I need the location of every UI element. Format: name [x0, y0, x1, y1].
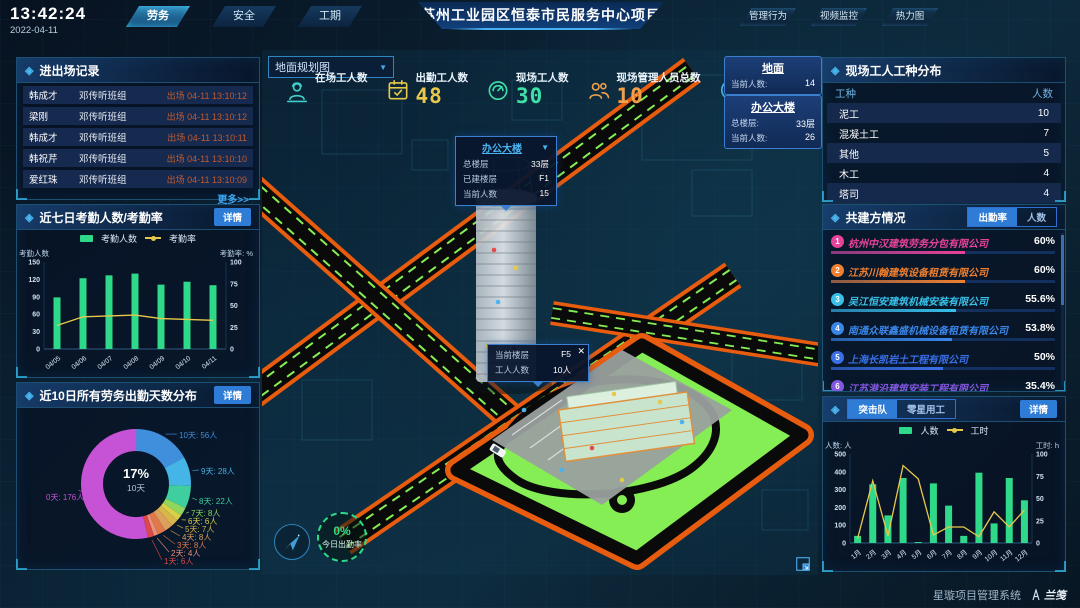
people-icon	[586, 77, 612, 103]
building-info-card: 办公大楼 总楼层:33层 当前人数:26	[724, 95, 822, 149]
building-tooltip: 办公大楼 ▼ 总楼层33层 已建楼层F1 当前人数15	[455, 136, 557, 206]
rank-badge: 4	[831, 322, 844, 335]
assault-legend: 人数 工时	[823, 422, 1065, 438]
svg-text:工时: h: 工时: h	[1036, 440, 1059, 450]
ground-info-card: 地面 当前人数:14	[724, 56, 822, 95]
svg-text:120: 120	[28, 277, 40, 284]
partner-percentage: 60%	[1034, 235, 1055, 247]
legend-label: 考勤人数	[101, 232, 137, 245]
svg-text:12月: 12月	[1013, 548, 1029, 563]
partner-row: 4南通众联鑫盛机械设备租赁有限公司53.8%	[831, 322, 1055, 346]
svg-text:100: 100	[230, 260, 242, 267]
panel-diamond-icon: ◈	[831, 403, 839, 416]
system-name: 星璇项目管理系统	[933, 587, 1021, 603]
attendance-chart: 考勤人数考勤率: %0306090120150025507510004/0504…	[17, 246, 255, 376]
stat-value: 48	[416, 85, 469, 108]
legend-line-swatch	[145, 237, 161, 239]
legend-label: 人数	[920, 424, 938, 437]
progress-fill	[831, 367, 943, 370]
worker-type: 塔司	[839, 186, 859, 201]
stat-item: 现场工人数30	[485, 70, 569, 108]
partner-name: 上海长凯岩土工程有限公司	[848, 351, 1013, 366]
nav-tab-safety[interactable]: 安全	[212, 6, 276, 27]
tooltip-title: 办公大楼	[482, 140, 522, 155]
chevron-down-icon[interactable]: ▼	[541, 143, 549, 152]
nav-left: 劳务 安全 工期	[126, 6, 362, 27]
assault-chart: 人数: 人工时: h010020030040050002550751001月2月…	[823, 438, 1061, 570]
current-time: 13:42:24	[10, 4, 86, 24]
panel-diamond-icon: ◈	[831, 64, 839, 77]
floor-tooltip: ✕ 当前楼层F5 工人人数10人	[487, 344, 589, 382]
stat-item: 在场工人数	[284, 70, 368, 103]
tooltip-arrow	[532, 381, 544, 387]
entry-exit-list: 韩成才邓传听班组出场 04-11 13:10:12梁刚邓传听班组出场 04-11…	[17, 86, 259, 188]
tab-headcount[interactable]: 人数	[1017, 208, 1056, 226]
scrollbar	[1061, 233, 1064, 386]
worker-name: 梁刚	[29, 109, 79, 123]
brand-logo: 兰笺	[1031, 587, 1066, 603]
worker-count: 7	[1043, 128, 1049, 139]
assault-tabs: 突击队 零星用工	[847, 399, 956, 419]
partner-name: 吴江恒安建筑机械安装有限公司	[848, 293, 1013, 308]
svg-text:100: 100	[1036, 452, 1048, 459]
partner-percentage: 50%	[1034, 351, 1055, 363]
svg-text:9月: 9月	[971, 548, 984, 561]
svg-text:25: 25	[1036, 518, 1044, 525]
worker-name: 韩祝芹	[29, 151, 79, 165]
partner-row: 1杭州中汉建筑劳务分包有限公司60%	[831, 235, 1055, 259]
worker-count: 4	[1043, 168, 1049, 179]
entry-exit-row: 爱红珠邓传听班组出场 04-11 13:10:09	[23, 170, 253, 188]
stat-value: 10	[617, 85, 701, 108]
svg-text:300: 300	[834, 487, 846, 494]
donut-slice-label: 9天: 28人	[201, 466, 235, 477]
legend-bar-swatch	[899, 427, 912, 434]
worker-type: 混凝土工	[839, 126, 879, 141]
nav-right: 管理行为 视频监控 热力图	[740, 8, 938, 26]
svg-text:7月: 7月	[941, 548, 954, 561]
donut-slice-label: 10天: 56人	[179, 430, 217, 441]
fullscreen-icon[interactable]	[795, 556, 811, 572]
worker-type: 木工	[839, 166, 859, 181]
partner-row: 3吴江恒安建筑机械安装有限公司55.6%	[831, 293, 1055, 317]
stat-label: 在场工人数	[315, 70, 368, 85]
exit-event: 出场 04-11 13:10:11	[167, 131, 247, 144]
progress-track	[831, 338, 1055, 341]
svg-text:2月: 2月	[865, 548, 878, 561]
svg-text:30: 30	[32, 329, 40, 336]
worker-type-row: 木工4	[827, 163, 1061, 183]
tab-odd-jobs[interactable]: 零星用工	[897, 400, 955, 418]
svg-text:6月: 6月	[925, 548, 938, 561]
partner-percentage: 35.4%	[1025, 380, 1055, 392]
svg-text:04/07: 04/07	[97, 355, 115, 371]
stat-item: 出勤工人数48	[385, 70, 469, 108]
attendance-panel: ◈ 近七日考勤人数/考勤率 详情 考勤人数 考勤率 考勤人数考勤率: %0306…	[16, 204, 260, 378]
entry-exit-row: 韩祝芹邓传听班组出场 04-11 13:10:10	[23, 149, 253, 167]
detail-button[interactable]: 详情	[214, 386, 251, 404]
compass-icon[interactable]	[274, 524, 310, 560]
worker-name: 韩成才	[29, 130, 79, 144]
partner-name: 江苏川翰建筑设备租赁有限公司	[848, 264, 1013, 279]
detail-button[interactable]: 详情	[1020, 400, 1057, 418]
worker-types-header: 工种人数	[823, 83, 1065, 103]
close-icon[interactable]: ✕	[577, 347, 585, 356]
partner-name: 杭州中汉建筑劳务分包有限公司	[848, 235, 1013, 250]
entry-exit-row: 梁刚邓传听班组出场 04-11 13:10:12	[23, 107, 253, 125]
svg-text:3月: 3月	[880, 548, 893, 561]
worker-type: 其他	[839, 146, 859, 161]
svg-text:5月: 5月	[910, 548, 923, 561]
rank-badge: 1	[831, 235, 844, 248]
nav-tab-labor[interactable]: 劳务	[126, 6, 190, 27]
svg-text:1月: 1月	[850, 548, 863, 561]
svg-text:90: 90	[32, 294, 40, 301]
svg-text:100: 100	[834, 523, 846, 530]
svg-text:0: 0	[230, 347, 234, 354]
progress-track	[831, 251, 1055, 254]
worker-count: 10	[1038, 108, 1049, 119]
panel-diamond-icon: ◈	[25, 64, 33, 77]
distribution-donut: 17% 10天 10天: 56人9天: 28人8天: 22人7天: 8人6天: …	[17, 408, 259, 566]
exit-event: 出场 04-11 13:10:12	[167, 110, 247, 123]
legend-label: 考勤率	[169, 232, 196, 245]
donut-center-label: 17% 10天	[106, 466, 166, 494]
legend-bar-swatch	[80, 235, 93, 242]
worker-count: 5	[1043, 148, 1049, 159]
svg-text:25: 25	[230, 325, 238, 332]
worker-type-row: 其他5	[827, 143, 1061, 163]
svg-text:0: 0	[36, 347, 40, 354]
svg-text:04/11: 04/11	[201, 355, 218, 371]
rank-badge: 3	[831, 293, 844, 306]
svg-text:200: 200	[834, 505, 846, 512]
worker-group: 邓传听班组	[79, 151, 167, 165]
partners-panel: ◈ 共建方情况 出勤率 人数 1杭州中汉建筑劳务分包有限公司60%2江苏川翰建筑…	[822, 204, 1066, 392]
donut-slice-label: 0天: 176人	[46, 492, 84, 503]
svg-text:75: 75	[230, 281, 238, 288]
rank-badge: 5	[831, 351, 844, 364]
stat-label: 出勤工人数	[416, 70, 469, 85]
tooltip-arrow	[500, 205, 512, 211]
svg-text:8月: 8月	[956, 548, 969, 561]
worker-icon	[284, 77, 310, 103]
partners-list: 1杭州中汉建筑劳务分包有限公司60%2江苏川翰建筑设备租赁有限公司60%3吴江恒…	[823, 235, 1065, 392]
donut-slice-label: 8天: 22人	[199, 496, 233, 507]
svg-text:150: 150	[28, 260, 40, 267]
donut-slice-label: 1天: 6人	[164, 556, 193, 567]
worker-group: 邓传听班组	[79, 172, 167, 186]
dashboard-root: 13:42:24 2022-04-11 劳务 安全 工期 苏州工业园区恒泰市民服…	[0, 0, 1080, 608]
svg-text:考勤率: %: 考勤率: %	[220, 248, 254, 258]
panel-diamond-icon: ◈	[831, 211, 839, 224]
worker-type-row: 塔司4	[827, 183, 1061, 203]
tab-attendance-rate[interactable]: 出勤率	[968, 208, 1017, 226]
exit-event: 出场 04-11 13:10:10	[167, 152, 247, 165]
partner-percentage: 55.6%	[1025, 293, 1055, 305]
attendance-legend: 考勤人数 考勤率	[17, 230, 259, 246]
progress-track	[831, 309, 1055, 312]
partner-row: 5上海长凯岩土工程有限公司50%	[831, 351, 1055, 375]
svg-text:人数: 人: 人数: 人	[825, 440, 852, 450]
worker-type-row: 泥工10	[827, 103, 1061, 123]
panel-title: 共建方情况	[845, 209, 905, 226]
svg-text:400: 400	[834, 469, 846, 476]
panel-title: 近10日所有劳务出勤天数分布	[39, 387, 196, 404]
legend-label: 工时	[971, 424, 989, 437]
stat-item: 现场管理人员总数10	[586, 70, 701, 108]
worker-group: 邓传听班组	[79, 88, 167, 102]
progress-fill	[831, 338, 952, 341]
worker-group: 邓传听班组	[79, 109, 167, 123]
worker-count: 4	[1043, 188, 1049, 199]
entry-exit-row: 韩成才邓传听班组出场 04-11 13:10:12	[23, 86, 253, 104]
panel-title: 进出场记录	[39, 62, 99, 79]
svg-text:04/10: 04/10	[175, 355, 193, 371]
progress-fill	[831, 280, 965, 283]
svg-text:04/08: 04/08	[123, 355, 141, 371]
exit-event: 出场 04-11 13:10:12	[167, 89, 247, 102]
svg-text:04/05: 04/05	[45, 355, 63, 371]
svg-text:04/09: 04/09	[149, 355, 167, 371]
svg-text:考勤人数: 考勤人数	[19, 248, 49, 258]
detail-button[interactable]: 详情	[214, 208, 251, 226]
worker-group: 邓传听班组	[79, 130, 167, 144]
partner-row: 2江苏川翰建筑设备租赁有限公司60%	[831, 264, 1055, 288]
worker-types-list: 泥工10混凝土工7其他5木工4塔司4	[823, 103, 1065, 203]
scrollbar-thumb[interactable]	[1061, 235, 1064, 305]
svg-text:0: 0	[1036, 541, 1040, 548]
svg-text:60: 60	[32, 312, 40, 319]
progress-fill	[831, 251, 965, 254]
entry-exit-panel: ◈ 进出场记录 韩成才邓传听班组出场 04-11 13:10:12梁刚邓传听班组…	[16, 57, 260, 200]
exit-event: 出场 04-11 13:10:09	[167, 173, 247, 186]
panel-title: 近七日考勤人数/考勤率	[39, 209, 162, 226]
assault-panel: ◈ 突击队 零星用工 详情 人数 工时 人数: 人工时: h0100200300…	[822, 396, 1066, 572]
svg-text:4月: 4月	[895, 548, 908, 561]
tab-assault-team[interactable]: 突击队	[848, 400, 897, 418]
svg-text:04/06: 04/06	[71, 355, 89, 371]
rank-badge: 2	[831, 264, 844, 277]
svg-text:50: 50	[1036, 496, 1044, 503]
footer: 星璇项目管理系统 兰笺	[933, 587, 1066, 603]
partner-percentage: 53.8%	[1025, 322, 1055, 334]
partner-name: 南通众联鑫盛机械设备租赁有限公司	[848, 322, 1013, 337]
brand-logo-icon	[1031, 589, 1041, 601]
worker-name: 韩成才	[29, 88, 79, 102]
worker-name: 爱红珠	[29, 172, 79, 186]
clock: 13:42:24 2022-04-11	[10, 4, 86, 36]
svg-text:10月: 10月	[983, 548, 999, 563]
nav-tab-schedule[interactable]: 工期	[298, 6, 362, 27]
progress-track	[831, 367, 1055, 370]
worker-types-panel: ◈ 现场工人工种分布 工种人数 泥工10混凝土工7其他5木工4塔司4	[822, 57, 1066, 202]
entry-exit-row: 韩成才邓传听班组出场 04-11 13:10:11	[23, 128, 253, 146]
today-attendance-badge: 0% 今日出勤率	[317, 512, 367, 562]
current-date: 2022-04-11	[10, 25, 86, 36]
stat-value: 30	[516, 85, 569, 108]
title-underline	[448, 28, 634, 30]
stat-label: 现场管理人员总数	[617, 70, 701, 85]
worker-type-row: 混凝土工7	[827, 123, 1061, 143]
worker-type: 泥工	[839, 106, 859, 121]
page-title: 苏州工业园区恒泰市民服务中心项目	[418, 2, 664, 29]
panel-diamond-icon: ◈	[25, 211, 33, 224]
legend-line-swatch	[947, 429, 963, 431]
partners-tabs: 出勤率 人数	[967, 207, 1057, 227]
svg-text:500: 500	[834, 452, 846, 459]
distribution-panel: ◈ 近10日所有劳务出勤天数分布 详情 17% 10天 10天: 56人9天: …	[16, 382, 260, 570]
progress-track	[831, 280, 1055, 283]
gauge-icon	[485, 77, 511, 103]
partner-name: 江苏港沿建筑安装工程有限公司	[848, 380, 1013, 392]
nav-tab-video[interactable]: 视频监控	[811, 8, 867, 26]
progress-fill	[831, 309, 956, 312]
svg-text:50: 50	[230, 303, 238, 310]
panel-diamond-icon: ◈	[25, 389, 33, 402]
svg-text:75: 75	[1036, 474, 1044, 481]
partner-percentage: 60%	[1034, 264, 1055, 276]
nav-tab-heatmap[interactable]: 热力图	[882, 8, 938, 26]
nav-tab-management[interactable]: 管理行为	[740, 8, 796, 26]
rank-badge: 6	[831, 380, 844, 392]
svg-text:0: 0	[842, 541, 846, 548]
panel-title: 现场工人工种分布	[845, 62, 941, 79]
partner-row: 6江苏港沿建筑安装工程有限公司35.4%	[831, 380, 1055, 392]
svg-text:11月: 11月	[999, 548, 1015, 563]
calendar-check-icon	[385, 77, 411, 103]
stat-label: 现场工人数	[516, 70, 569, 85]
